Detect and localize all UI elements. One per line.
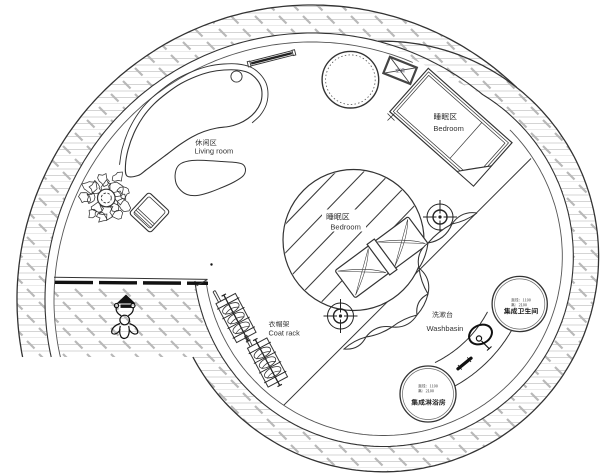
svg-text:Coat rack: Coat rack — [269, 329, 301, 338]
svg-text:Living room: Living room — [195, 147, 234, 156]
svg-text:Washbasin: Washbasin — [427, 324, 464, 333]
svg-text:Bedroom: Bedroom — [330, 222, 360, 231]
svg-text:Bedroom: Bedroom — [433, 124, 463, 133]
